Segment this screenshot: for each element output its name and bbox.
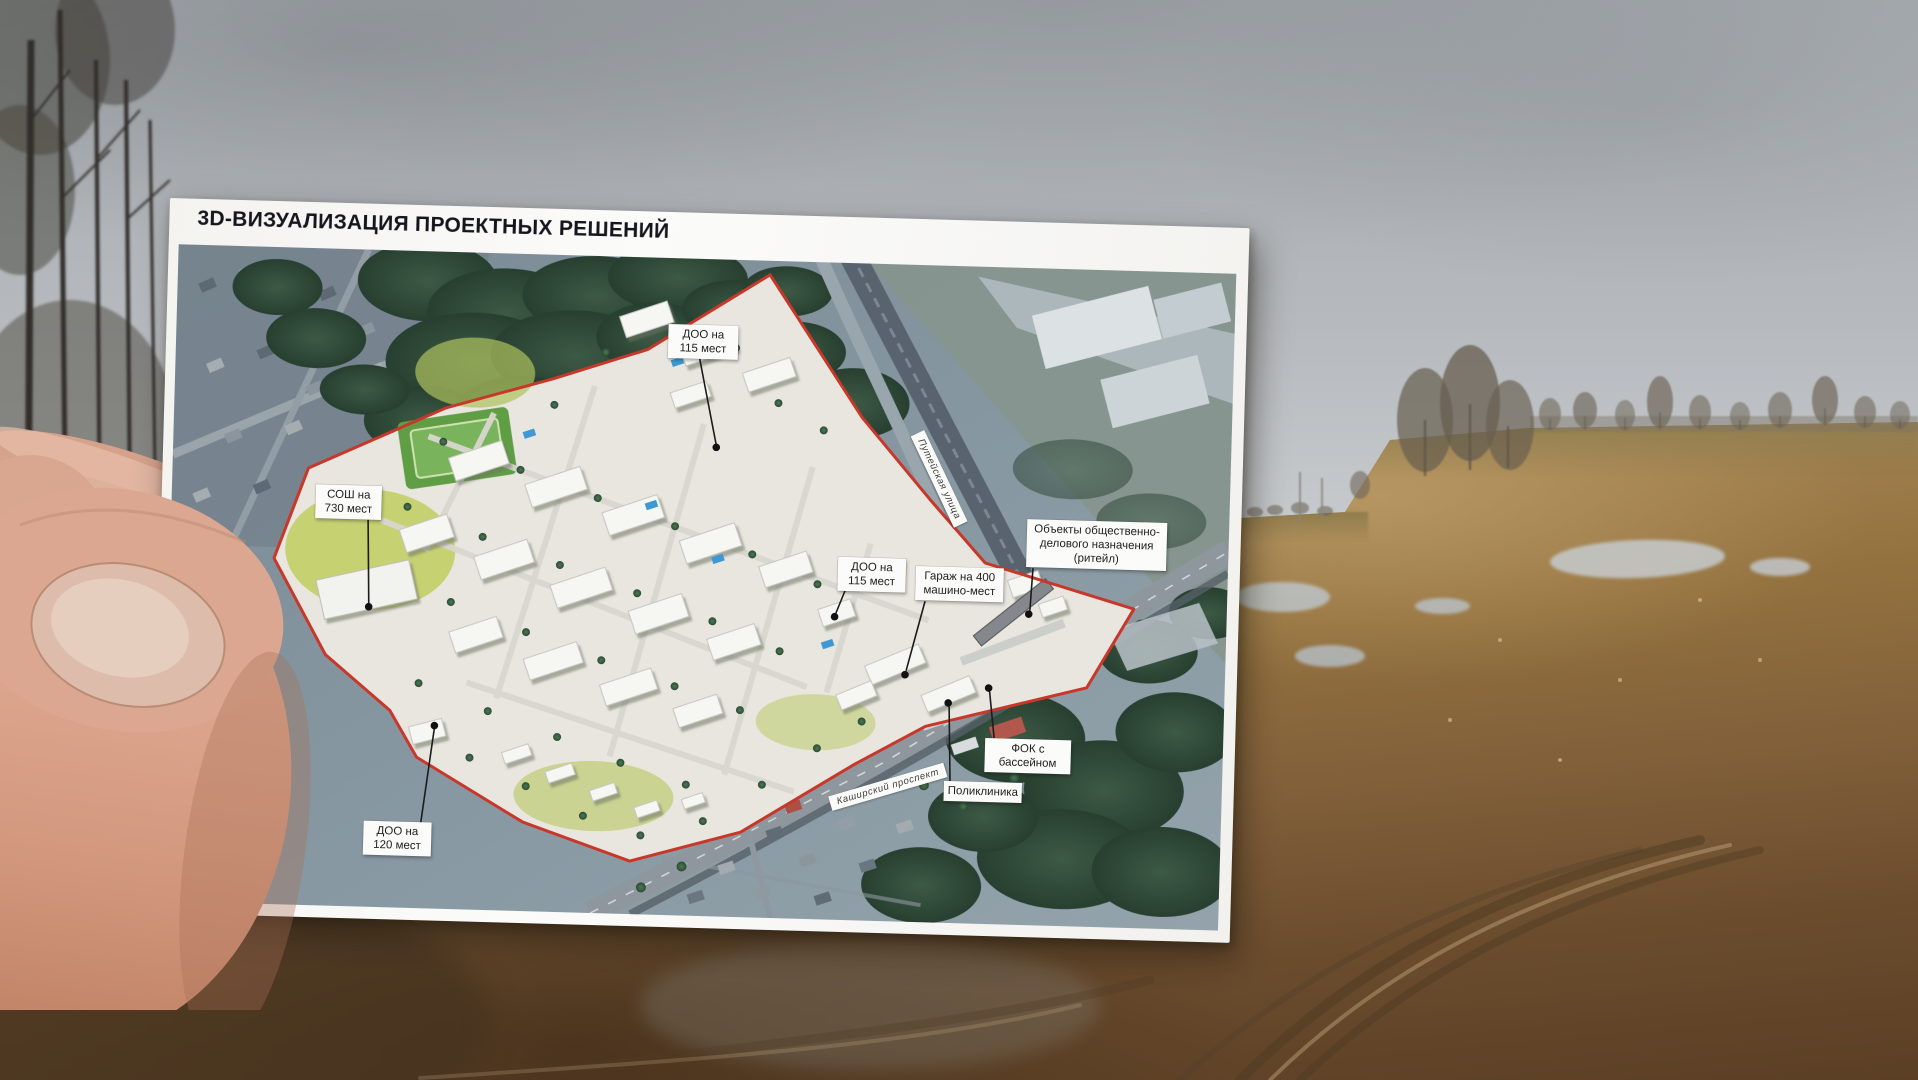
callout-fok: ФОК с бассейном <box>984 738 1071 774</box>
callout-doo-bottom: ДОО на 120 мест <box>363 821 432 857</box>
callout-doo-mid: ДОО на 115 мест <box>837 557 906 593</box>
callout-retail: Объекты общественно-делового назначения … <box>1026 519 1167 571</box>
callout-doo-top: ДОО на 115 мест <box>668 324 739 360</box>
callout-polyclinic: Поликлиника <box>943 781 1022 803</box>
tall-bare-trees <box>1397 345 1534 472</box>
distant-bushes <box>1247 471 1370 517</box>
sheet-title: 3D-ВИЗУАЛИЗАЦИЯ ПРОЕКТНЫХ РЕШЕНИЙ <box>197 207 670 244</box>
photo-scene: 3D-ВИЗУАЛИЗАЦИЯ ПРОЕКТНЫХ РЕШЕНИЙ <box>0 0 1918 1080</box>
utility-pole <box>1300 472 1322 525</box>
callout-garage: Гараж на 400 машино-мест <box>915 566 1004 602</box>
distant-treeline <box>1240 300 1918 545</box>
hand-thumb <box>0 430 330 1010</box>
